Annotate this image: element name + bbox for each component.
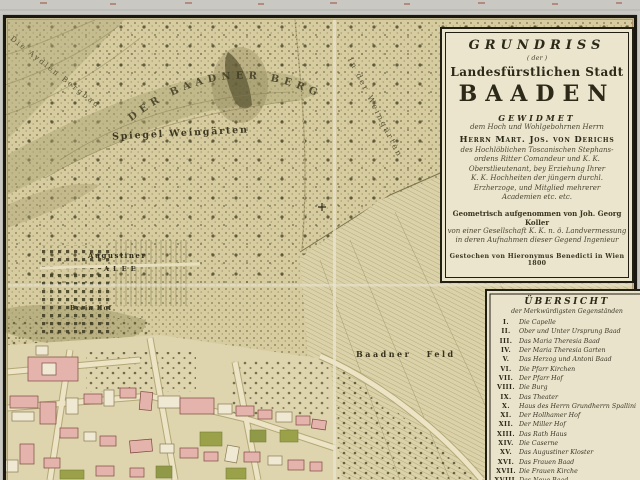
legend-numeral: XVI. <box>493 459 519 466</box>
map-subtitle: Landesfürstlichen Stadt <box>442 65 632 79</box>
legend-row: IV.Der Maria Theresia Garten <box>493 346 640 355</box>
legend-row: VIII.Die Burg <box>493 383 640 392</box>
engraver-imprint: Gestochen von Hieronymus Benedicti in Wi… <box>442 253 632 267</box>
legend-label: Ober und Unter Ursprung Baad <box>519 328 621 335</box>
legend-label: Das Rath Haus <box>519 431 567 438</box>
building <box>120 388 136 398</box>
legend-row: XVIII.Das Neue Baad <box>493 476 640 480</box>
dedication-line: des Hochlöblichen Toscanischen Stephans- <box>442 146 632 156</box>
building <box>130 439 153 453</box>
map-title-der: ( der ) <box>442 54 632 62</box>
title-cartouche: GRUNDRISS ( der ) Landesfürstlichen Stad… <box>440 27 634 283</box>
legend-row: II.Ober und Unter Ursprung Baad <box>493 327 640 336</box>
building <box>139 392 153 411</box>
legend-panel: ÜBERSICHT der Merkwürdigsten Gegenstände… <box>485 289 640 480</box>
legend-label: Die Capelle <box>519 319 556 326</box>
legend-subtitle: der Merkwürdigsten Gegenständen <box>493 308 640 315</box>
surveyor-line3: in deren Aufnahmen dieser Gegend Ingenie… <box>442 236 632 246</box>
map-scan: DER BAADNER BERG Die Aydlen Bergbad Spie… <box>0 0 640 480</box>
building <box>10 396 38 408</box>
legend-row: VI.Die Pfarr Kirchen <box>493 364 640 373</box>
legend-row: XIV.Die Caserne <box>493 439 640 448</box>
legend-row: XVI.Das Frauen Baad <box>493 457 640 466</box>
margin-top <box>0 0 640 14</box>
surveyor-line: Geometrisch aufgenommen von Joh. Georg K… <box>442 209 632 227</box>
legend-label: Das Herzog und Antoni Baad <box>519 356 612 363</box>
legend-label: Das Theater <box>519 394 558 401</box>
building <box>268 456 282 465</box>
legend-numeral: IX. <box>493 394 519 401</box>
legend-row: XI.Der Hollhamer Hof <box>493 411 640 420</box>
map-city-name: BAADEN <box>442 81 632 107</box>
building <box>236 406 254 416</box>
dedication-line: Erzherzoge, und Mitglied mehrerer <box>442 184 632 194</box>
building <box>310 462 322 471</box>
building <box>12 412 34 421</box>
legend-numeral: IV. <box>493 347 519 354</box>
legend-label: Die Caserne <box>519 440 558 447</box>
dedication-line: Oberstlieutenant, bey Erziehung Ihrer <box>442 165 632 175</box>
legend-row: XV.Das Augustiner Kloster <box>493 448 640 457</box>
building <box>44 458 60 468</box>
legend-label: Die Frauen Kirche <box>519 468 578 475</box>
building <box>180 398 214 414</box>
legend-numeral: VIII. <box>493 384 519 391</box>
legend-title: ÜBERSICHT <box>493 297 640 307</box>
legend-numeral: I. <box>493 319 519 326</box>
building <box>130 468 144 477</box>
building <box>276 412 292 422</box>
legend-row: VII.Der Pfarr Hof <box>493 374 640 383</box>
dedicatee-name: Herrn Mart. Jos. von Derichs <box>442 135 632 145</box>
legend-label: Das Maria Theresia Baad <box>519 338 600 345</box>
building <box>258 410 272 419</box>
building <box>204 452 218 461</box>
legend-numeral: XIV. <box>493 440 519 447</box>
legend-numeral: V. <box>493 356 519 363</box>
legend-row: XIII.Das Rath Haus <box>493 430 640 439</box>
fold-line-vertical <box>333 19 336 480</box>
legend-numeral: XVII. <box>493 468 519 475</box>
legend-numeral: III. <box>493 338 519 345</box>
building <box>84 432 96 441</box>
legend-label: Die Burg <box>519 384 548 391</box>
legend-label: Der Hollhamer Hof <box>519 412 580 419</box>
building <box>158 396 180 408</box>
building <box>311 419 326 430</box>
surveyor-line2: von einer Gesellschaft K. K. n. ö. Landv… <box>442 227 632 237</box>
legend-row: IX.Das Theater <box>493 392 640 401</box>
legend-label: Der Miller Hof <box>519 421 566 428</box>
legend-label: Haus des Herrn Grundherrn Spallini <box>519 403 636 410</box>
legend-numeral: X. <box>493 403 519 410</box>
building <box>225 445 240 463</box>
legend-row: X.Haus des Herrn Grundherrn Spallini <box>493 402 640 411</box>
building <box>296 416 310 425</box>
building <box>66 398 78 414</box>
building <box>40 402 56 424</box>
legend-label: Der Maria Theresia Garten <box>519 347 606 354</box>
allee-tree-grid <box>40 245 110 337</box>
building <box>160 444 174 453</box>
building <box>96 466 114 476</box>
fold-line-horizontal <box>7 284 634 287</box>
legend-numeral: VI. <box>493 366 519 373</box>
building <box>104 390 114 406</box>
dedication-line: Academien etc. etc. <box>442 193 632 203</box>
dedication-line: ordens Ritter Comandeur und K. K. <box>442 155 632 165</box>
garden-strips <box>112 240 188 306</box>
dedication-heading: GEWIDMET <box>442 113 632 123</box>
building <box>218 404 232 414</box>
legend-label: Die Pfarr Kirchen <box>519 366 575 373</box>
building <box>100 436 116 446</box>
legend-row: XVII.Die Frauen Kirche <box>493 467 640 476</box>
building <box>288 460 304 470</box>
building <box>36 346 48 355</box>
legend-label: Das Augustiner Kloster <box>519 449 593 456</box>
legend-numeral: XIII. <box>493 431 519 438</box>
legend-row: III.Das Maria Theresia Baad <box>493 337 640 346</box>
dedication-intro: dem Hoch und Wohlgebohrnen Herrn <box>442 123 632 133</box>
building <box>20 444 34 464</box>
legend-numeral: XII. <box>493 421 519 428</box>
building <box>244 452 260 462</box>
building <box>180 448 198 458</box>
legend-numeral: XV. <box>493 449 519 456</box>
legend-numeral: XI. <box>493 412 519 419</box>
kloster-courtyard <box>42 363 56 375</box>
map-title: GRUNDRISS <box>442 38 632 53</box>
building <box>60 428 78 438</box>
legend-label: Das Frauen Baad <box>519 459 574 466</box>
legend-numeral: VII. <box>493 375 519 382</box>
margin-left <box>0 0 3 480</box>
legend-row: I.Die Capelle <box>493 318 640 327</box>
town-orchard-n <box>86 352 196 392</box>
building <box>84 394 102 404</box>
dedication-line: K. K. Hochheiten der jüngern durchl. <box>442 174 632 184</box>
legend-row: V.Das Herzog und Antoni Baad <box>493 355 640 364</box>
legend-numeral: II. <box>493 328 519 335</box>
legend-row: XII.Der Miller Hof <box>493 420 640 429</box>
legend-label: Der Pfarr Hof <box>519 375 563 382</box>
